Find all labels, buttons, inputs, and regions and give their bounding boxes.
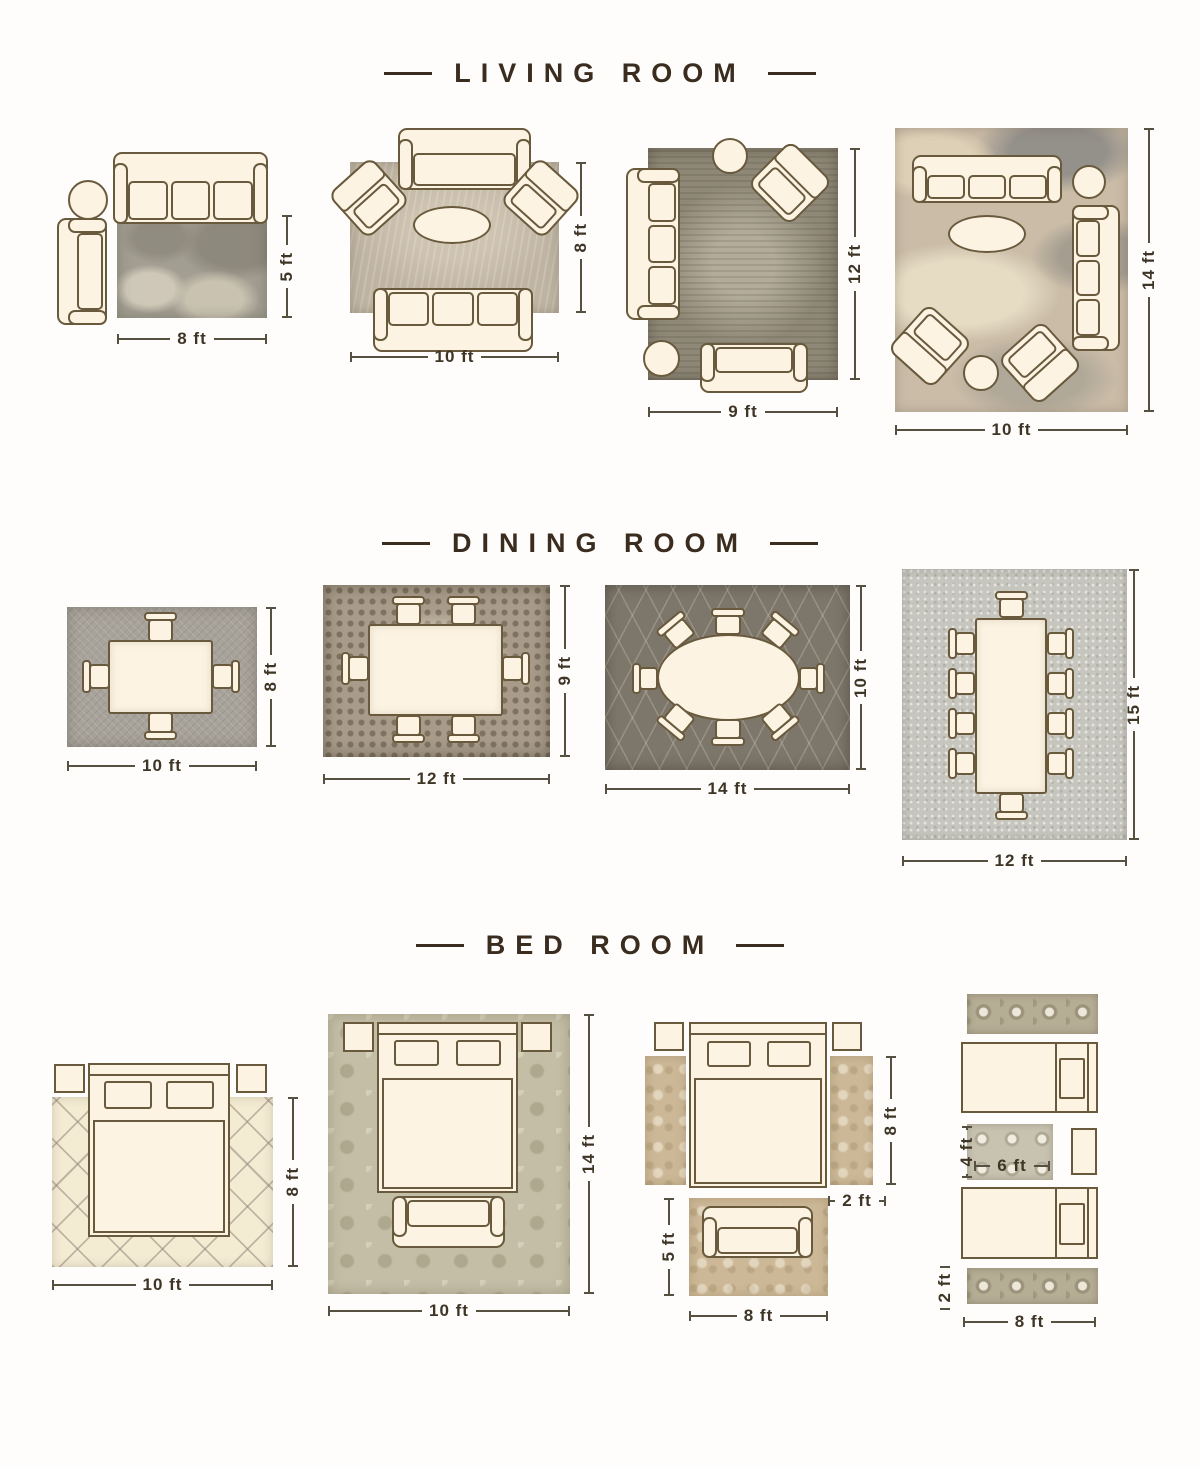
twin-bed [961, 1042, 1098, 1113]
dim-line [350, 356, 428, 358]
dining-chair [713, 608, 743, 635]
three-seat-sofa [912, 155, 1062, 203]
sofa-cushion [1076, 220, 1100, 257]
bed-blanket [382, 1078, 513, 1189]
chair-seat [451, 603, 476, 625]
width-dimension: 10 ft [350, 347, 559, 367]
dining-chair [799, 665, 825, 692]
sofa-seat [128, 181, 253, 220]
headboard [377, 1022, 518, 1035]
chair-seat [955, 712, 975, 735]
width-dimension: 10 ft [52, 1275, 273, 1295]
sofa-cushion [927, 175, 965, 199]
dim-line [974, 1165, 990, 1167]
sofa-arm [1072, 205, 1109, 220]
dim-line [189, 1284, 273, 1286]
dimension-label: 8 ft [744, 1306, 774, 1326]
dim-line [189, 765, 257, 767]
section-title-dining-room: DINING ROOM [452, 528, 748, 559]
chair-seat [348, 656, 369, 681]
chair-seat [1047, 672, 1067, 695]
sofa-arm [637, 168, 680, 183]
chair-seat [1047, 752, 1067, 775]
rug-8x5 [117, 215, 267, 318]
rug-size-guide-poster: LIVING ROOM 5 ft 8 ft 8 ft 10 ft [0, 0, 1200, 1467]
sofa-cushion [477, 292, 518, 326]
dim-line [323, 778, 410, 780]
height-dimension: 8 ft [572, 162, 590, 313]
bed [689, 1022, 827, 1188]
dim-line [1133, 569, 1135, 678]
sofa-arm [253, 163, 268, 224]
dim-line [1034, 1165, 1050, 1167]
nightstand [521, 1022, 552, 1052]
sofa-cushion [715, 347, 793, 373]
sofa-cushion [1076, 299, 1100, 336]
dim-line [780, 1315, 828, 1317]
header-dash-right [768, 72, 816, 75]
dim-line [67, 765, 135, 767]
sofa-arm [1072, 336, 1109, 351]
dimension-label: 2 ft [842, 1191, 872, 1211]
dining-chair [713, 719, 743, 746]
header-dash-left [382, 542, 430, 545]
chair-seat [1047, 712, 1067, 735]
bed-pillow [1059, 1203, 1085, 1245]
width-dimension: 14 ft [605, 779, 850, 799]
dining-chair [997, 591, 1026, 618]
dim-line [765, 411, 838, 413]
bed-pillow [767, 1041, 811, 1067]
dim-line [966, 1174, 968, 1178]
runner-height-dimension: 8 ft [882, 1056, 900, 1185]
sofa-seat [927, 175, 1047, 199]
chair-seat [999, 793, 1024, 813]
dining-chair [146, 712, 175, 740]
dimension-label: 14 ft [579, 1134, 599, 1174]
dim-line [481, 356, 559, 358]
dim-line [1041, 860, 1127, 862]
bed-divider-line [1055, 1189, 1057, 1257]
rug-height-dimension: 5 ft [660, 1198, 678, 1296]
dining-chair [948, 630, 975, 657]
dim-line [292, 1097, 294, 1160]
chair-seat [799, 667, 818, 690]
chair-seat [639, 667, 658, 690]
chair-seat [1047, 632, 1067, 655]
sofa-arm [793, 343, 808, 382]
sofa-arm [113, 163, 128, 224]
height-dimension: 12 ft [846, 148, 864, 380]
dining-chair [449, 715, 478, 743]
dim-line [854, 291, 856, 380]
chair-seat [212, 664, 233, 689]
runner-rug-8x2 [967, 1268, 1098, 1304]
sofa-arm [392, 1196, 407, 1237]
dining-chair [632, 665, 658, 692]
runner-rug-8x2 [967, 994, 1098, 1034]
three-seat-sofa [626, 168, 680, 320]
chair-seat [148, 712, 173, 733]
bedroom-bench [392, 1196, 505, 1248]
bed-pillow [1059, 1058, 1085, 1099]
sofa-cushion [407, 1200, 490, 1227]
nightstand [236, 1064, 267, 1093]
round-side-table [1072, 165, 1106, 199]
height-dimension: 8 ft [262, 607, 280, 747]
dining-chair [948, 670, 975, 697]
height-dimension: 5 ft [278, 215, 296, 318]
dimension-label: 5 ft [277, 252, 297, 282]
round-side-table [963, 355, 999, 391]
twin-bed [961, 1187, 1098, 1259]
dining-chair [341, 654, 369, 683]
sofa-seat [77, 233, 103, 310]
sofa-cushion [717, 1227, 798, 1254]
sofa-seat [648, 183, 676, 305]
bed [377, 1022, 518, 1193]
dimension-label: 10 ft [429, 1301, 469, 1321]
sofa-arm [912, 166, 927, 203]
height-dimension: 9 ft [556, 585, 574, 757]
sofa-arm [518, 288, 533, 341]
sofa-cushion [968, 175, 1006, 199]
three-seat-sofa [373, 288, 533, 352]
runner-rug-2x8 [830, 1056, 873, 1185]
sofa-cushion [648, 225, 676, 264]
bed-blanket [694, 1078, 822, 1184]
dimension-label: 8 ft [177, 329, 207, 349]
dim-line [52, 1284, 136, 1286]
section-header-bed-room: BED ROOM [0, 930, 1200, 961]
bed-pillow [166, 1081, 214, 1109]
dim-line [828, 1200, 835, 1202]
bed-pillow [394, 1040, 439, 1066]
sofa-arm [490, 1196, 505, 1237]
height-dimension: 8 ft [284, 1097, 302, 1267]
sofa-seat [407, 1200, 490, 1227]
headboard-line [1087, 1189, 1089, 1257]
dimension-label: 12 ft [417, 769, 457, 789]
dim-line [1038, 429, 1128, 431]
loveseat [700, 343, 808, 393]
dining-table [368, 624, 503, 716]
dim-line [1148, 297, 1150, 412]
dimension-label: 12 ft [995, 851, 1035, 871]
dim-line [1148, 128, 1150, 243]
dim-line [270, 607, 272, 655]
accent-rug-width-dimension: 6 ft [974, 1156, 1050, 1176]
sofa-cushion [1076, 260, 1100, 297]
height-dimension: 10 ft [852, 585, 870, 770]
dim-line [668, 1198, 670, 1225]
dimension-label: 5 ft [659, 1232, 679, 1262]
width-dimension: 9 ft [648, 402, 838, 422]
dim-line [668, 1269, 670, 1296]
dining-chair [997, 793, 1026, 820]
dining-chair [1047, 630, 1074, 657]
dimension-label: 10 ft [142, 756, 182, 776]
dim-line [966, 1126, 968, 1130]
header-dash-left [384, 72, 432, 75]
dim-line [890, 1056, 892, 1099]
chair-seat [999, 598, 1024, 618]
bed-pillow [456, 1040, 501, 1066]
dim-line [1051, 1321, 1096, 1323]
nightstand [654, 1022, 684, 1051]
dim-line [854, 148, 856, 237]
sofa-arm [373, 288, 388, 341]
dimension-label: 10 ft [143, 1275, 183, 1295]
chair-seat [451, 715, 476, 736]
dim-line [689, 1315, 737, 1317]
dining-chair [1047, 710, 1074, 737]
sofa-arm [68, 218, 107, 233]
round-side-table [68, 180, 108, 220]
sofa-seat [413, 153, 516, 186]
dining-chair [1047, 670, 1074, 697]
sofa-cushion [413, 153, 516, 186]
nightstand [343, 1022, 374, 1052]
chair-seat [955, 672, 975, 695]
dining-chair [449, 596, 478, 625]
headboard [88, 1063, 230, 1076]
nightstand [832, 1022, 862, 1051]
width-dimension: 10 ft [895, 420, 1128, 440]
dimension-label: 8 ft [283, 1167, 303, 1197]
section-header-dining-room: DINING ROOM [0, 528, 1200, 559]
width-dimension: 10 ft [67, 756, 257, 776]
chair-seat [715, 719, 741, 739]
dimension-label: 14 ft [708, 779, 748, 799]
dim-line [963, 1321, 1008, 1323]
dim-line [286, 215, 288, 245]
chair-seat [396, 715, 421, 736]
dining-chair [394, 715, 423, 743]
dim-line [902, 860, 988, 862]
dim-line [754, 788, 850, 790]
bed-pillow [707, 1041, 751, 1067]
bed-pillow [104, 1081, 152, 1109]
sofa-arm [68, 310, 107, 325]
dim-line [214, 338, 267, 340]
dining-chair [948, 710, 975, 737]
dining-chair [82, 662, 110, 691]
dimension-label: 8 ft [1015, 1312, 1045, 1332]
sofa-cushion [648, 266, 676, 305]
bed-blanket [93, 1120, 225, 1233]
dim-line [476, 1310, 570, 1312]
dim-line [117, 338, 170, 340]
dim-line [588, 1181, 590, 1294]
oval-coffee-table [413, 206, 491, 244]
sofa-cushion [388, 292, 429, 326]
sofa-arm [702, 1217, 717, 1258]
chair-seat [89, 664, 110, 689]
dimension-label: 9 ft [728, 402, 758, 422]
dim-line [328, 1310, 422, 1312]
dim-line [860, 585, 862, 651]
dimension-label: 8 ft [881, 1106, 901, 1136]
header-dash-right [736, 944, 784, 947]
chair-seat [955, 752, 975, 775]
sofa-seat [715, 347, 793, 373]
sofa-seat [388, 292, 518, 326]
runner-width-dimension: 8 ft [963, 1312, 1096, 1332]
bed [88, 1063, 230, 1237]
dim-line [605, 788, 701, 790]
dimension-label: 14 ft [1139, 250, 1159, 290]
loveseat [702, 1206, 813, 1258]
round-side-table [712, 138, 748, 174]
chair-seat [715, 615, 741, 635]
width-dimension: 8 ft [117, 329, 267, 349]
runner-height-dimension: 2 ft [936, 1266, 954, 1306]
dimension-label: 6 ft [997, 1156, 1027, 1176]
oval-coffee-table [948, 215, 1026, 253]
dim-line [879, 1200, 886, 1202]
chair-seat [148, 619, 173, 642]
sofa-seat [717, 1227, 798, 1254]
headboard [689, 1022, 827, 1035]
sofa-arm [798, 1217, 813, 1258]
headboard-line [1087, 1044, 1089, 1111]
dimension-label: 10 ft [851, 658, 871, 698]
dim-line [564, 693, 566, 757]
width-dimension: 10 ft [328, 1301, 570, 1321]
three-seat-sofa [1072, 205, 1120, 351]
height-dimension: 15 ft [1125, 569, 1143, 840]
sofa-cushion [171, 181, 211, 220]
bed-divider-line [1055, 1044, 1057, 1111]
width-dimension: 12 ft [323, 769, 550, 789]
section-title-living-room: LIVING ROOM [454, 58, 746, 89]
sofa-seat [1076, 220, 1100, 336]
dim-line [648, 411, 721, 413]
sofa-cushion [1009, 175, 1047, 199]
sofa-cushion [128, 181, 168, 220]
dimension-label: 9 ft [555, 656, 575, 686]
dimension-label: 15 ft [1124, 685, 1144, 725]
sofa-cushion [77, 233, 103, 310]
section-title-bed-room: BED ROOM [486, 930, 715, 961]
dim-line [564, 585, 566, 649]
height-dimension: 14 ft [580, 1014, 598, 1294]
sofa-cushion [648, 183, 676, 222]
dim-line [588, 1014, 590, 1127]
dim-line [270, 699, 272, 747]
height-dimension: 14 ft [1140, 128, 1158, 412]
sofa-cushion [432, 292, 473, 326]
dim-line [463, 778, 550, 780]
sofa-arm [700, 343, 715, 382]
dimension-label: 8 ft [261, 662, 281, 692]
nightstand [1071, 1128, 1097, 1175]
header-dash-right [770, 542, 818, 545]
dining-chair [146, 612, 175, 642]
sofa-arm [1047, 166, 1062, 203]
rug-width-dimension: 8 ft [689, 1306, 828, 1326]
dining-chair [502, 654, 530, 683]
sofa-cushion [213, 181, 253, 220]
sofa-arm [398, 139, 413, 190]
dim-line [580, 162, 582, 216]
dim-line [580, 259, 582, 313]
dining-chair [212, 662, 240, 691]
dining-chair [394, 596, 423, 625]
runner-rug-2x8 [645, 1056, 686, 1185]
dim-line [1133, 731, 1135, 840]
dining-chair [948, 750, 975, 777]
runner-width-dimension: 2 ft [828, 1191, 886, 1211]
chair-seat [955, 632, 975, 655]
dimension-label: 8 ft [571, 223, 591, 253]
chaise-sofa [57, 218, 107, 325]
dim-line [286, 288, 288, 318]
sofa-arm [637, 305, 680, 320]
dim-line [890, 1142, 892, 1185]
dimension-label: 2 ft [935, 1273, 955, 1303]
nightstand [54, 1064, 85, 1093]
loveseat [398, 128, 531, 190]
dining-table [975, 618, 1047, 794]
dimension-label: 12 ft [845, 244, 865, 284]
width-dimension: 12 ft [902, 851, 1127, 871]
dining-table [108, 640, 213, 714]
header-dash-left [416, 944, 464, 947]
three-seat-sofa [113, 152, 268, 224]
chair-seat [396, 603, 421, 625]
round-side-table [643, 340, 680, 377]
dim-line [292, 1204, 294, 1267]
dining-chair [1047, 750, 1074, 777]
section-header-living-room: LIVING ROOM [0, 58, 1200, 89]
dim-line [860, 704, 862, 770]
chair-seat [502, 656, 523, 681]
dimension-label: 10 ft [435, 347, 475, 367]
dimension-label: 10 ft [992, 420, 1032, 440]
dim-line [895, 429, 985, 431]
